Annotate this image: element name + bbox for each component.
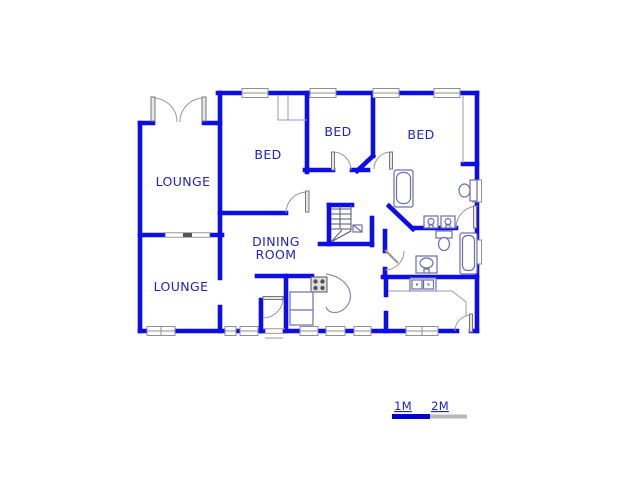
french-door [151,97,206,122]
bathtub-main [460,233,477,274]
stair-landing-marker [353,225,362,232]
room-label-lounge-top: LOUNGE [156,174,211,189]
opening-lounge-passage [163,233,212,237]
floor-plan-page: LOUNGE BED BED BED DINING ROOM LOUNGE 1M… [0,0,640,480]
opening-center-tick [183,233,192,237]
kitchen-counter-curve [326,274,350,313]
closet-bed1 [278,95,307,120]
window-bottom-1 [147,327,175,336]
scale-bar-segment-1m [392,414,430,419]
door-bed3 [374,152,393,169]
window-bottom-4 [300,327,318,336]
kitchen-double-sink [410,278,436,291]
scullery-counter [388,291,466,316]
door-bathroom [385,250,404,270]
stove [311,277,327,292]
scale-label-2m: 2M [431,399,449,413]
window-top-4 [434,89,460,98]
door-bed1 [286,191,309,213]
window-bottom-2 [225,327,236,336]
toilet-main [436,231,452,251]
floor-plan-drawing: LOUNGE BED BED BED DINING ROOM LOUNGE 1M… [0,0,640,480]
door-vestibule [263,297,283,319]
toilet-master [459,180,477,201]
bathtub-master [394,170,413,207]
staircase [331,205,362,242]
scale-bar-segment-2m [430,415,467,419]
window-top-1 [242,89,268,98]
scale-bar: 1M 2M [392,399,467,419]
room-label-bed-1: BED [254,147,281,162]
opening-entry [263,329,285,338]
scale-label-1m: 1M [394,399,412,413]
window-bottom-7 [406,327,438,336]
wall-diagonal-bath [389,206,413,229]
door-bed2 [332,152,352,170]
windows [147,89,482,336]
window-bottom-6 [354,327,371,336]
window-bottom-3 [240,327,258,336]
room-label-bed-2: BED [324,124,351,139]
door-master [456,206,478,228]
room-label-lounge-bottom: LOUNGE [154,279,209,294]
window-top-3 [373,89,399,98]
window-bottom-5 [326,327,345,336]
room-label-bed-3: BED [407,127,434,142]
pedestal-sink [416,256,437,273]
room-label-dining-line2: ROOM [256,247,297,262]
window-top-2 [310,89,336,98]
